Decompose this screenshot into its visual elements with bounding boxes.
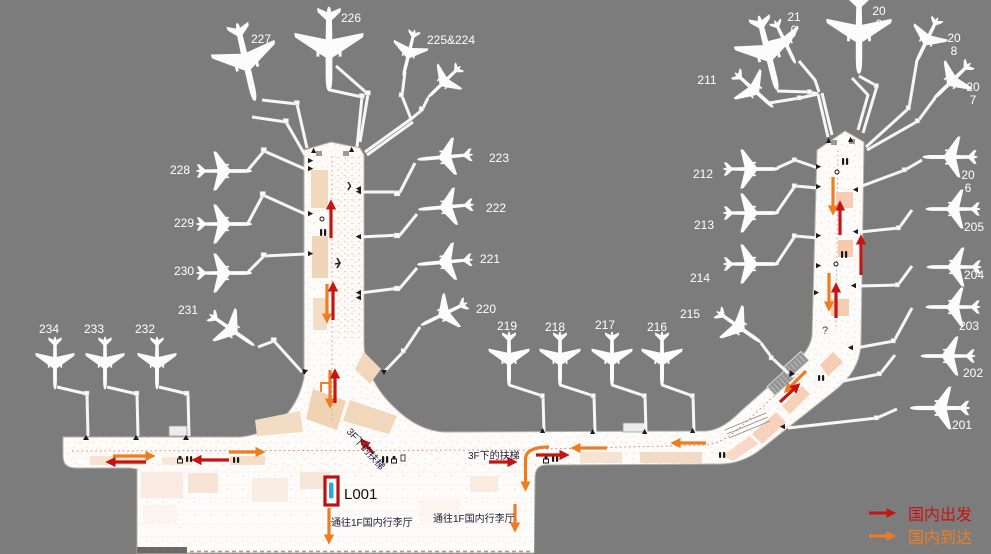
- svg-text:231: 231: [178, 303, 198, 317]
- svg-text:233: 233: [84, 322, 104, 336]
- svg-text:227: 227: [251, 32, 271, 46]
- svg-text:219: 219: [497, 319, 517, 333]
- svg-text:217: 217: [595, 318, 615, 332]
- svg-text:6: 6: [965, 181, 972, 195]
- svg-text:234: 234: [39, 322, 59, 336]
- svg-text:通往1F国内行李厅: 通往1F国内行李厅: [331, 516, 413, 529]
- svg-text:7: 7: [970, 93, 977, 107]
- svg-text:9: 9: [876, 17, 883, 31]
- svg-text:222: 222: [486, 201, 506, 215]
- svg-text:3F下的扶梯: 3F下的扶梯: [468, 449, 520, 462]
- svg-text:213: 213: [694, 218, 714, 232]
- svg-text:218: 218: [545, 320, 565, 334]
- svg-text:国内出发: 国内出发: [908, 506, 972, 524]
- svg-text:202: 202: [963, 366, 983, 380]
- svg-text:221: 221: [480, 252, 500, 266]
- svg-text:223: 223: [489, 151, 509, 165]
- svg-text:225&224: 225&224: [427, 33, 475, 47]
- svg-text:通往1F国内行李厅: 通往1F国内行李厅: [433, 512, 515, 525]
- svg-text:L001: L001: [344, 486, 377, 503]
- svg-text:229: 229: [174, 216, 194, 230]
- svg-text:204: 204: [964, 268, 984, 282]
- svg-text:20: 20: [872, 4, 886, 18]
- svg-text:国内到达: 国内到达: [908, 529, 972, 547]
- svg-text:230: 230: [174, 264, 194, 278]
- svg-text:211: 211: [697, 73, 716, 87]
- svg-text:226: 226: [341, 11, 361, 25]
- svg-text:203: 203: [959, 319, 979, 333]
- svg-text:205: 205: [964, 220, 984, 234]
- svg-text:20: 20: [966, 80, 980, 94]
- svg-text:8: 8: [951, 44, 958, 58]
- svg-text:215: 215: [680, 307, 700, 321]
- svg-text:21: 21: [787, 10, 801, 24]
- svg-text:220: 220: [476, 302, 496, 316]
- svg-text:201: 201: [952, 418, 972, 432]
- svg-text:214: 214: [690, 271, 710, 285]
- svg-text:212: 212: [693, 167, 713, 181]
- svg-text:0: 0: [791, 23, 798, 37]
- svg-text:216: 216: [647, 320, 667, 334]
- svg-text:228: 228: [170, 163, 190, 177]
- svg-text:232: 232: [135, 322, 155, 336]
- svg-text:?: ?: [822, 325, 828, 337]
- svg-text:20: 20: [961, 168, 975, 182]
- svg-text:20: 20: [947, 31, 961, 45]
